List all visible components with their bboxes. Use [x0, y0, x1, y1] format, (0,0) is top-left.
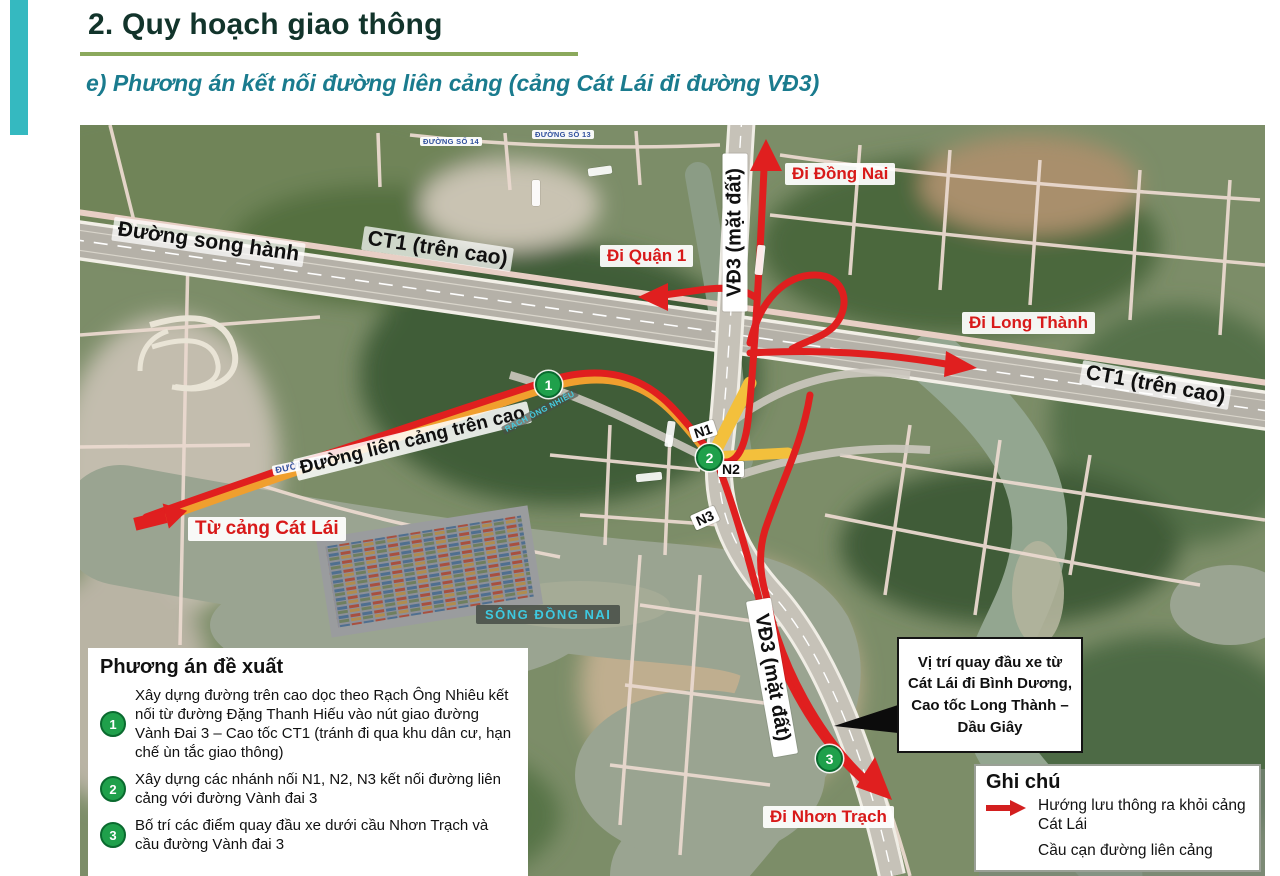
map-key-title: Ghi chú	[986, 771, 1249, 794]
map-marker-3: 3	[816, 745, 843, 772]
proposal-item: 2 Xây dựng các nhánh nối N1, N2, N3 kết …	[100, 770, 516, 808]
title-underline	[80, 52, 578, 56]
red-arrow-icon	[986, 797, 1028, 821]
proposal-text-3: Bố trí các điểm quay đầu xe dưới cầu Nhơ…	[135, 816, 516, 854]
proposal-box: Phương án đề xuất 1 Xây dựng đường trên …	[88, 648, 528, 876]
callout-turnaround: Vị trí quay đầu xe từ Cát Lái đi Bình Dư…	[897, 637, 1083, 753]
map-key-item: Hướng lưu thông ra khỏi cảng Cát Lái	[986, 797, 1249, 835]
proposal-text-1: Xây dựng đường trên cao dọc theo Rạch Ôn…	[135, 686, 516, 762]
proposal-marker-1: 1	[100, 711, 126, 737]
map-key-box: Ghi chú Hướng lưu thông ra khỏi cảng Cát…	[974, 764, 1261, 872]
map-key-text-2: Cầu cạn đường liên cảng	[1038, 842, 1213, 861]
page-title: 2. Quy hoạch giao thông	[88, 8, 443, 42]
proposal-marker-2: 2	[100, 776, 126, 802]
proposal-item: 1 Xây dựng đường trên cao dọc theo Rạch …	[100, 686, 516, 762]
map-marker-1: 1	[535, 371, 562, 398]
label-di-quan-1: Đi Quận 1	[600, 245, 693, 267]
page-subtitle: e) Phương án kết nối đường liên cảng (cả…	[86, 70, 819, 97]
label-song-dong-nai: SÔNG ĐỒNG NAI	[476, 605, 620, 624]
map-marker-2: 2	[696, 444, 723, 471]
accent-bar	[10, 0, 28, 135]
map-key-text-1: Hướng lưu thông ra khỏi cảng Cát Lái	[1038, 797, 1249, 835]
label-tu-cang-cat-lai: Từ cảng Cát Lái	[188, 517, 346, 541]
satellite-map: ĐƯỜNG SỐ 14 ĐƯỜNG SỐ 13 ĐƯỜNG D3 Đường s…	[80, 125, 1265, 876]
road-name-pill: ĐƯỜNG SỐ 13	[532, 130, 594, 139]
label-di-dong-nai: Đi Đồng Nai	[785, 163, 895, 185]
label-di-long-thanh: Đi Long Thành	[962, 312, 1095, 334]
slide: { "page": { "title": "2. Quy hoạch giao …	[0, 0, 1280, 876]
label-n2: N2	[718, 461, 744, 477]
proposal-title: Phương án đề xuất	[100, 656, 516, 679]
proposal-marker-3: 3	[100, 822, 126, 848]
map-key-item: Cầu cạn đường liên cảng	[986, 842, 1249, 861]
road-name-pill-blank	[532, 180, 540, 206]
proposal-text-2: Xây dựng các nhánh nối N1, N2, N3 kết nố…	[135, 770, 516, 808]
label-di-nhon-trach: Đi Nhơn Trạch	[763, 806, 894, 828]
label-vd3-mat-dat-top: VĐ3 (mặt đất)	[723, 154, 748, 312]
yellow-viaduct-icon	[986, 842, 1028, 845]
road-name-pill: ĐƯỜNG SỐ 14	[420, 137, 482, 146]
proposal-item: 3 Bố trí các điểm quay đầu xe dưới cầu N…	[100, 816, 516, 854]
